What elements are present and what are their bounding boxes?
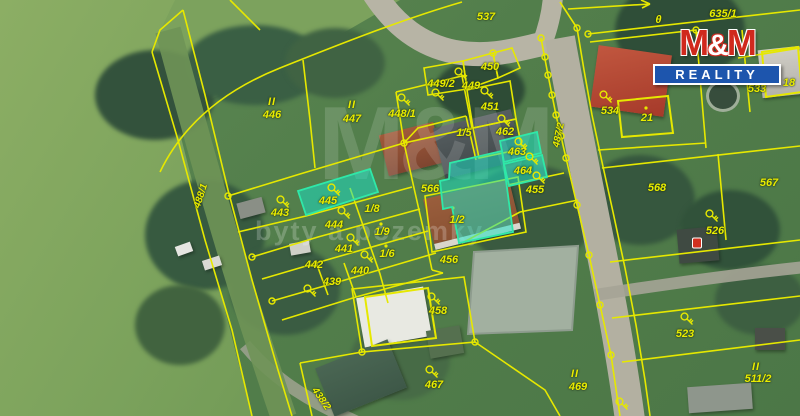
parcel-label-442: 442 xyxy=(305,259,323,271)
parcel-label-455: 455 xyxy=(526,184,544,196)
key-icon xyxy=(346,233,360,247)
key-icon xyxy=(480,86,494,100)
parcel-label-448/1: 448/1 xyxy=(388,108,416,120)
landuse-mark-II: II xyxy=(348,99,356,111)
parcel-label-450: 450 xyxy=(481,61,499,73)
parcel-label-21: 21 xyxy=(641,112,653,124)
key-icon xyxy=(680,312,694,326)
cadastral-map[interactable]: M&M byty a pozemky xyxy=(0,0,800,416)
landuse-mark-II: II xyxy=(752,361,760,373)
key-icon xyxy=(497,114,511,128)
parcel-label-1/5: 1/5 xyxy=(456,127,471,139)
key-icon xyxy=(337,206,351,220)
key-icon xyxy=(425,365,439,379)
parcel-label-567: 567 xyxy=(760,177,778,189)
key-icon xyxy=(525,152,539,166)
key-icon xyxy=(514,137,528,151)
parcel-label-1/8: 1/8 xyxy=(364,203,379,215)
parcel-label-568: 568 xyxy=(648,182,666,194)
logo-ampersand: & xyxy=(707,29,727,62)
key-icon xyxy=(454,67,468,81)
red-building-marker xyxy=(692,238,702,249)
key-icon xyxy=(532,171,546,185)
parcel-label-458: 458 xyxy=(429,305,447,317)
logo-m-right: M xyxy=(727,22,755,63)
parcel-label-444: 444 xyxy=(325,219,343,231)
parcel-label-464: 464 xyxy=(514,165,532,177)
parcel-label-446: 446 xyxy=(263,109,281,121)
parcel-label-566: 566 xyxy=(421,183,439,195)
key-icon xyxy=(615,397,629,411)
parcel-label-1/2: 1/2 xyxy=(449,214,464,226)
logo-m-left: M xyxy=(679,22,707,63)
parcel-label-439: 439 xyxy=(323,276,341,288)
key-icon xyxy=(360,250,374,264)
parcel-label-526: 526 xyxy=(706,225,724,237)
key-icon xyxy=(705,209,719,223)
parcel-label-449: 449 xyxy=(462,80,480,92)
parcel-label-1/9: 1/9 xyxy=(374,226,389,238)
parcel-label-635/1: 635/1 xyxy=(709,8,737,20)
key-icon xyxy=(276,195,290,209)
parcel-label-451: 451 xyxy=(481,101,499,113)
key-icon xyxy=(599,90,613,104)
landuse-mark-II: II xyxy=(268,96,276,108)
key-icon xyxy=(397,93,411,107)
parcel-label-469: 469 xyxy=(569,381,587,393)
logo-banner: REALITY xyxy=(653,64,781,85)
road-label-487/2: 487/2 xyxy=(551,122,567,149)
key-icon xyxy=(327,183,341,197)
mm-logo-letters: M&M xyxy=(653,26,781,63)
logo-banner-text: REALITY xyxy=(675,67,759,82)
road-label-438/2: 438/2 xyxy=(309,386,332,413)
road-label-488/1: 488/1 xyxy=(192,182,210,209)
parcel-label-447: 447 xyxy=(343,113,361,125)
parcel-label-534: 534 xyxy=(601,105,619,117)
landuse-mark-θ: θ xyxy=(655,14,662,26)
parcel-label-537: 537 xyxy=(477,11,495,23)
parcel-label-456: 456 xyxy=(440,254,458,266)
parcel-label-467: 467 xyxy=(425,379,443,391)
key-icon xyxy=(303,284,317,298)
parcel-label-1/6: 1/6 xyxy=(379,248,394,260)
parcel-label-523: 523 xyxy=(676,328,694,340)
parcel-label-440: 440 xyxy=(351,265,369,277)
key-icon xyxy=(427,292,441,306)
parcel-label-511/2: 511/2 xyxy=(745,373,772,385)
mm-reality-logo: M&M REALITY xyxy=(653,26,781,85)
landuse-mark-II: II xyxy=(571,368,579,380)
key-icon xyxy=(431,88,445,102)
parcel-label-18: 18 xyxy=(783,77,795,89)
